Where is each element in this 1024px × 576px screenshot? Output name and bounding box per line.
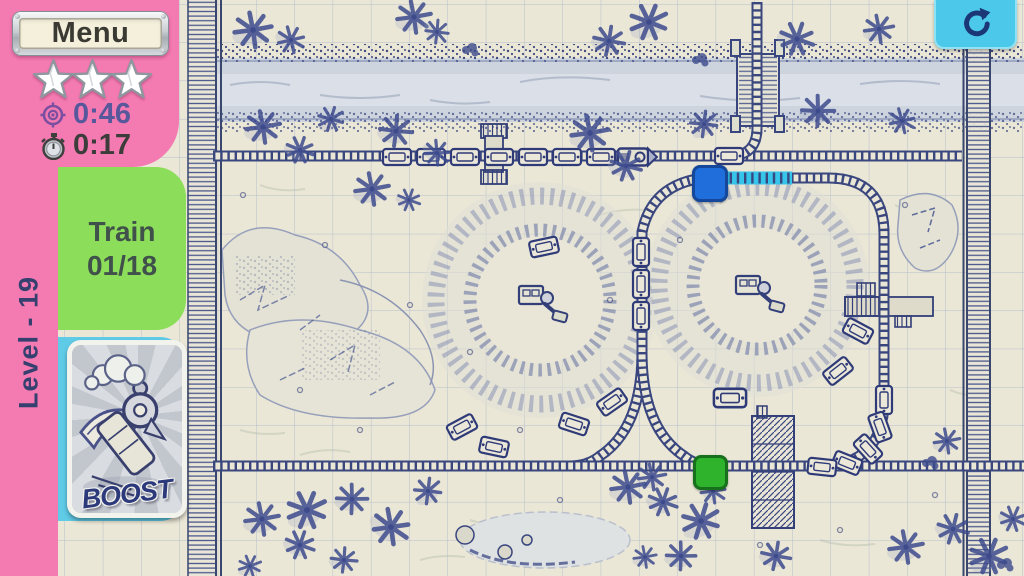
target-time-value: 0:46 <box>73 100 131 129</box>
train-counter-title: Train <box>89 215 156 248</box>
screw-icon <box>161 14 166 19</box>
screw-icon <box>15 48 20 53</box>
level-label: Level - 19 <box>4 208 54 476</box>
star-icon <box>110 58 153 101</box>
stars-earned <box>34 58 151 101</box>
boost-tab: BOOST <box>58 337 186 521</box>
elapsed-time-row: 0:17 <box>40 131 131 160</box>
train-counter-tab: Train 01/18 <box>58 167 186 330</box>
hud-panel: Menu 0:46 <box>0 0 179 167</box>
restart-button[interactable] <box>934 0 1017 49</box>
star-icon <box>71 58 114 101</box>
crater-left <box>422 182 658 418</box>
pond <box>456 512 630 568</box>
left-margin-strip <box>188 0 221 576</box>
circular-arrow-icon <box>956 6 996 42</box>
target-icon <box>40 102 66 128</box>
train-counter-value: 01/18 <box>87 249 157 282</box>
stopwatch-icon <box>40 132 66 160</box>
boost-card[interactable]: BOOST <box>67 340 187 518</box>
green-switch[interactable] <box>693 455 728 490</box>
target-time-row: 0:46 <box>40 100 131 129</box>
right-margin-strip <box>964 44 991 576</box>
screw-icon <box>161 48 166 53</box>
blue-switch[interactable] <box>692 165 728 202</box>
elapsed-time-value: 0:17 <box>73 131 131 160</box>
menu-button-label: Menu <box>19 18 162 49</box>
star-icon <box>32 58 75 101</box>
menu-button[interactable]: Menu <box>12 11 169 56</box>
